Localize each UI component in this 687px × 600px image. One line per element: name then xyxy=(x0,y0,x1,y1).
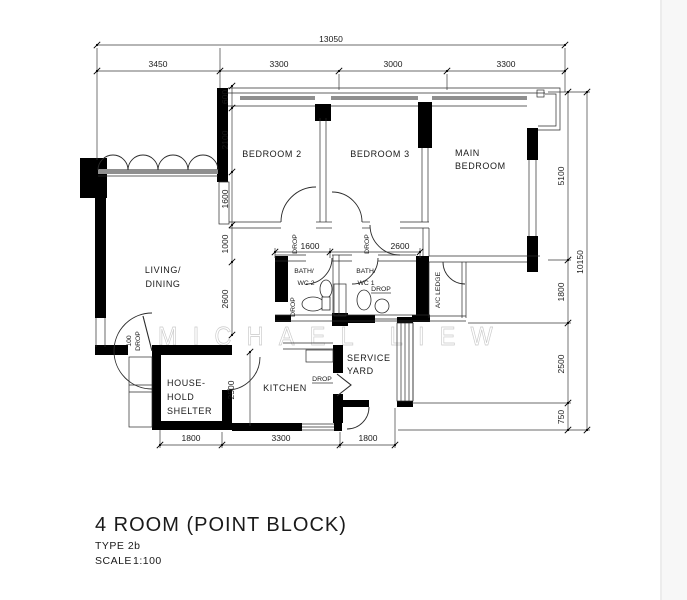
ac-ledge-label: A/C LEDGE xyxy=(435,271,442,308)
dim-bath2-width: 1600 xyxy=(301,241,320,251)
bedroom3-door-arc xyxy=(332,192,362,222)
dim-top-1: 3450 xyxy=(149,59,168,69)
bath1-label-1: BATH/ xyxy=(356,268,376,275)
household-shelter-label-3: SHELTER xyxy=(167,406,212,416)
floorplan-drawing: MICHAEL LIEW xyxy=(0,0,687,600)
service-yard-label-2: YARD xyxy=(347,366,374,376)
dim-top-overall: 13050 xyxy=(319,34,343,44)
bedroom2-label: BEDROOM 2 xyxy=(242,149,301,159)
bathroom-fixtures xyxy=(302,280,389,313)
dim-right-1: 5100 xyxy=(556,166,566,185)
dim-top-2: 3300 xyxy=(270,59,289,69)
bedroom3-label: BEDROOM 3 xyxy=(350,149,409,159)
service-yard-label-1: SERVICE xyxy=(347,353,391,363)
entrance-door-leaf xyxy=(143,316,152,351)
dim-left-3: 1600 xyxy=(220,189,230,208)
bath1-label-2: WC 1 xyxy=(358,280,375,287)
title-block: 4 ROOM (POINT BLOCK) TYPE 2b SCALE 1:100 xyxy=(95,514,347,567)
bedroom2-door-arc xyxy=(281,187,316,222)
dim-bottom-3: 1800 xyxy=(359,433,378,443)
bath1-toilet xyxy=(357,290,371,310)
dim-top-3: 3000 xyxy=(384,59,403,69)
dim-right-3: 2500 xyxy=(556,354,566,373)
dim-left-2: 2100 xyxy=(220,130,230,149)
dim-left-1: 600 xyxy=(220,90,230,104)
household-shelter-label-1: HOUSE- xyxy=(167,378,206,388)
bath2-label-2: WC 2 xyxy=(298,280,315,287)
dim-bottom-2: 3300 xyxy=(272,433,291,443)
bath2-toilet xyxy=(302,297,324,311)
bath2-basin xyxy=(320,280,332,298)
floorplan-page: MICHAEL LIEW xyxy=(0,0,687,600)
bath2-label-1: BATH/ xyxy=(294,268,314,275)
main-bedroom-label-2: BEDROOM xyxy=(455,161,506,171)
plan-title: 4 ROOM (POINT BLOCK) xyxy=(95,514,347,536)
drop-entrance-value: 100 xyxy=(126,335,133,347)
service-yard-door-arc xyxy=(347,407,369,429)
kitchen-label: KITCHEN xyxy=(263,383,307,393)
living-label-1: LIVING/ xyxy=(145,265,181,275)
drop-bath1-door: DROP xyxy=(364,234,371,254)
plan-scale-value: 1:100 xyxy=(133,555,162,567)
dim-top-4: 3300 xyxy=(497,59,516,69)
drop-entrance-label: DROP xyxy=(135,331,142,351)
main-bedroom-label-1: MAIN xyxy=(455,148,480,158)
dim-right-4: 750 xyxy=(556,410,566,424)
dim-left-5: 2600 xyxy=(220,289,230,308)
dim-left-4: 1000 xyxy=(220,234,230,253)
kitchen-service-step xyxy=(337,374,351,396)
bath2-cistern xyxy=(322,297,330,310)
bay-window xyxy=(98,155,218,176)
dim-bath1-width: 2600 xyxy=(391,241,410,251)
bath1-basin xyxy=(375,299,389,313)
dim-kitchen-depth: 2500 xyxy=(226,380,236,399)
dim-bottom-1: 1800 xyxy=(182,433,201,443)
living-label-2: DINING xyxy=(145,279,180,289)
plan-scale-label: SCALE xyxy=(95,555,132,567)
drop-bath2-door: DROP xyxy=(292,234,299,254)
dim-right-overall: 10150 xyxy=(575,250,585,274)
household-shelter-label-2: HOLD xyxy=(167,392,194,402)
page-border xyxy=(661,0,687,600)
dim-right-2: 1800 xyxy=(556,282,566,301)
drop-bath1-floor: DROP xyxy=(371,286,391,293)
drop-bath2-floor: DROP xyxy=(290,297,297,317)
plan-type: TYPE 2b xyxy=(95,540,141,552)
drop-service-yard: DROP xyxy=(312,376,332,383)
walls xyxy=(80,88,538,431)
